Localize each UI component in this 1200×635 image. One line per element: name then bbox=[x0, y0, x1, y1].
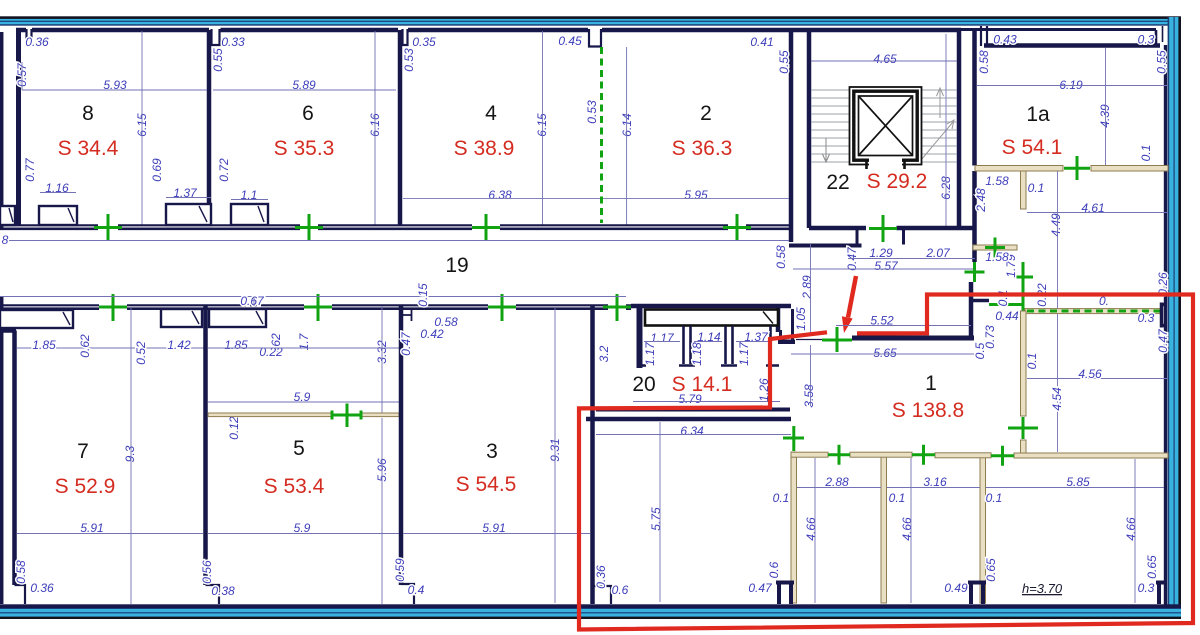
svg-text:4.65: 4.65 bbox=[873, 52, 897, 66]
svg-text:22: 22 bbox=[826, 171, 849, 194]
svg-text:0.42: 0.42 bbox=[420, 327, 444, 341]
svg-text:0.77: 0.77 bbox=[23, 157, 37, 182]
svg-text:S 35.3: S 35.3 bbox=[274, 137, 335, 160]
svg-text:6.38: 6.38 bbox=[488, 188, 512, 202]
svg-text:0.69: 0.69 bbox=[150, 158, 164, 182]
svg-text:5.75: 5.75 bbox=[649, 507, 663, 531]
svg-text:1.18: 1.18 bbox=[690, 342, 704, 366]
svg-text:4.66: 4.66 bbox=[1124, 517, 1138, 541]
svg-text:0.35: 0.35 bbox=[412, 35, 436, 49]
svg-text:1.17: 1.17 bbox=[643, 341, 657, 366]
svg-text:5.95: 5.95 bbox=[684, 188, 708, 202]
svg-text:h=3.70: h=3.70 bbox=[1022, 581, 1063, 596]
svg-text:S 138.8: S 138.8 bbox=[892, 399, 964, 422]
svg-text:0.49: 0.49 bbox=[944, 581, 968, 595]
svg-text:1.42: 1.42 bbox=[167, 338, 191, 352]
svg-text:0.36: 0.36 bbox=[25, 35, 49, 49]
svg-text:3: 3 bbox=[486, 440, 498, 463]
svg-text:6.15: 6.15 bbox=[535, 113, 549, 137]
svg-text:S 36.3: S 36.3 bbox=[672, 137, 733, 160]
svg-text:0.1: 0.1 bbox=[1025, 353, 1039, 370]
svg-text:0.45: 0.45 bbox=[558, 34, 582, 48]
svg-text:5.57: 5.57 bbox=[874, 259, 899, 273]
svg-text:8: 8 bbox=[2, 233, 9, 247]
svg-text:0.1: 0.1 bbox=[986, 491, 1003, 505]
svg-text:S 52.9: S 52.9 bbox=[55, 475, 116, 498]
svg-text:5.79: 5.79 bbox=[678, 392, 702, 406]
svg-text:S 54.1: S 54.1 bbox=[1002, 136, 1063, 159]
svg-text:2.48: 2.48 bbox=[974, 188, 988, 213]
svg-text:0.36: 0.36 bbox=[30, 581, 54, 595]
svg-text:0.1: 0.1 bbox=[889, 491, 906, 505]
svg-text:3.16: 3.16 bbox=[923, 475, 947, 489]
svg-text:0.53: 0.53 bbox=[402, 48, 416, 72]
svg-text:0.62: 0.62 bbox=[78, 334, 92, 358]
svg-text:2.89: 2.89 bbox=[800, 275, 814, 300]
svg-text:0.1: 0.1 bbox=[1028, 181, 1045, 195]
svg-text:0.59: 0.59 bbox=[393, 558, 407, 582]
svg-text:2.88: 2.88 bbox=[824, 475, 849, 489]
svg-text:0.58: 0.58 bbox=[774, 245, 788, 269]
svg-text:0.65: 0.65 bbox=[984, 558, 998, 582]
svg-text:5.85: 5.85 bbox=[1066, 475, 1090, 489]
svg-text:0.58: 0.58 bbox=[977, 50, 991, 74]
svg-text:4.56: 4.56 bbox=[1078, 367, 1102, 381]
svg-text:0.52: 0.52 bbox=[134, 341, 148, 365]
svg-text:6: 6 bbox=[302, 102, 314, 125]
svg-text:5.91: 5.91 bbox=[80, 521, 103, 535]
svg-text:0.1: 0.1 bbox=[996, 290, 1010, 307]
svg-text:4.66: 4.66 bbox=[804, 517, 818, 541]
svg-text:0.55: 0.55 bbox=[777, 50, 791, 74]
svg-text:0.4: 0.4 bbox=[408, 583, 425, 597]
svg-text:0.26: 0.26 bbox=[1156, 272, 1170, 296]
svg-text:1.85: 1.85 bbox=[32, 338, 56, 352]
svg-text:5.65: 5.65 bbox=[873, 346, 897, 360]
svg-text:S 29.2: S 29.2 bbox=[867, 170, 928, 193]
svg-text:0.43: 0.43 bbox=[993, 33, 1017, 47]
svg-text:1.58: 1.58 bbox=[985, 250, 1009, 264]
svg-text:0.33: 0.33 bbox=[221, 35, 245, 49]
svg-text:0.47: 0.47 bbox=[399, 331, 413, 356]
svg-text:0.12: 0.12 bbox=[227, 416, 241, 440]
svg-text:20: 20 bbox=[632, 373, 655, 396]
svg-text:1.29: 1.29 bbox=[869, 246, 893, 260]
svg-text:0.38: 0.38 bbox=[211, 584, 235, 598]
svg-text:1a: 1a bbox=[1026, 103, 1050, 126]
svg-text:7: 7 bbox=[77, 440, 89, 463]
svg-text:0.53: 0.53 bbox=[585, 100, 599, 124]
svg-text:0.56: 0.56 bbox=[200, 560, 214, 584]
svg-text:4.54: 4.54 bbox=[1050, 387, 1064, 411]
svg-text:1: 1 bbox=[925, 372, 937, 395]
svg-text:1.58: 1.58 bbox=[985, 174, 1009, 188]
svg-text:8: 8 bbox=[82, 102, 94, 125]
svg-text:0.3: 0.3 bbox=[1138, 33, 1155, 47]
svg-text:4: 4 bbox=[485, 102, 497, 125]
svg-text:5.91: 5.91 bbox=[482, 521, 505, 535]
svg-text:0.1: 0.1 bbox=[1139, 145, 1153, 162]
svg-text:0.22: 0.22 bbox=[259, 345, 283, 359]
svg-text:1.17: 1.17 bbox=[737, 341, 751, 366]
svg-text:0.1: 0.1 bbox=[773, 491, 790, 505]
svg-text:0.47: 0.47 bbox=[748, 581, 773, 595]
svg-text:0.55: 0.55 bbox=[1155, 50, 1169, 74]
svg-text:1.05: 1.05 bbox=[794, 307, 808, 331]
svg-text:0.15: 0.15 bbox=[416, 283, 430, 307]
svg-text:S 53.4: S 53.4 bbox=[264, 475, 325, 498]
svg-text:6.19: 6.19 bbox=[1059, 78, 1083, 92]
svg-text:2.07: 2.07 bbox=[925, 246, 951, 260]
svg-text:0.44: 0.44 bbox=[995, 309, 1019, 323]
svg-text:5: 5 bbox=[293, 437, 305, 460]
svg-text:0.65: 0.65 bbox=[1145, 555, 1159, 579]
svg-text:3.58: 3.58 bbox=[802, 384, 816, 408]
svg-text:3.2: 3.2 bbox=[597, 345, 611, 362]
svg-text:S 34.4: S 34.4 bbox=[58, 137, 119, 160]
svg-text:0.36: 0.36 bbox=[594, 565, 608, 589]
svg-text:9.3: 9.3 bbox=[123, 445, 137, 462]
svg-text:0.58: 0.58 bbox=[14, 560, 28, 584]
svg-text:0.6: 0.6 bbox=[767, 561, 781, 578]
svg-text:4.66: 4.66 bbox=[900, 517, 914, 541]
svg-text:0.3: 0.3 bbox=[1138, 581, 1155, 595]
svg-text:1.85: 1.85 bbox=[224, 338, 248, 352]
svg-text:S 38.9: S 38.9 bbox=[454, 137, 515, 160]
svg-text:6.34: 6.34 bbox=[680, 424, 704, 438]
svg-text:0.3: 0.3 bbox=[1138, 311, 1155, 325]
svg-text:0.6: 0.6 bbox=[612, 583, 629, 597]
svg-text:0.41: 0.41 bbox=[750, 35, 773, 49]
svg-text:19: 19 bbox=[445, 254, 468, 277]
svg-text:4.49: 4.49 bbox=[1049, 213, 1063, 237]
svg-text:0.47: 0.47 bbox=[1156, 328, 1170, 353]
svg-text:0.67: 0.67 bbox=[240, 294, 265, 308]
svg-text:5.9: 5.9 bbox=[294, 521, 311, 535]
svg-text:0.72: 0.72 bbox=[217, 158, 231, 182]
svg-text:S 54.5: S 54.5 bbox=[456, 473, 517, 496]
svg-text:0.55: 0.55 bbox=[211, 48, 225, 72]
svg-text:2: 2 bbox=[700, 102, 712, 125]
svg-text:0.5: 0.5 bbox=[973, 342, 987, 359]
svg-text:4.39: 4.39 bbox=[1098, 104, 1112, 128]
